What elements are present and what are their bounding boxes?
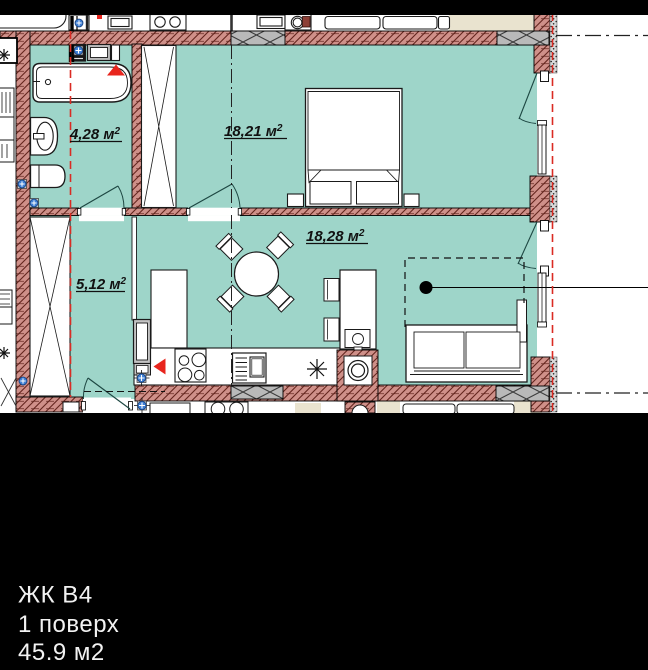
svg-text:18,21 м2: 18,21 м2	[224, 123, 283, 140]
svg-text:5,12 м2: 5,12 м2	[76, 276, 126, 293]
svg-text:45.9 м2: 45.9 м2	[18, 639, 105, 666]
svg-text:ЖК В4: ЖК В4	[18, 582, 93, 609]
svg-text:18,28 м2: 18,28 м2	[306, 228, 365, 245]
svg-text:1 поверх: 1 поверх	[18, 611, 119, 638]
svg-text:4,28 м2: 4,28 м2	[69, 126, 120, 143]
